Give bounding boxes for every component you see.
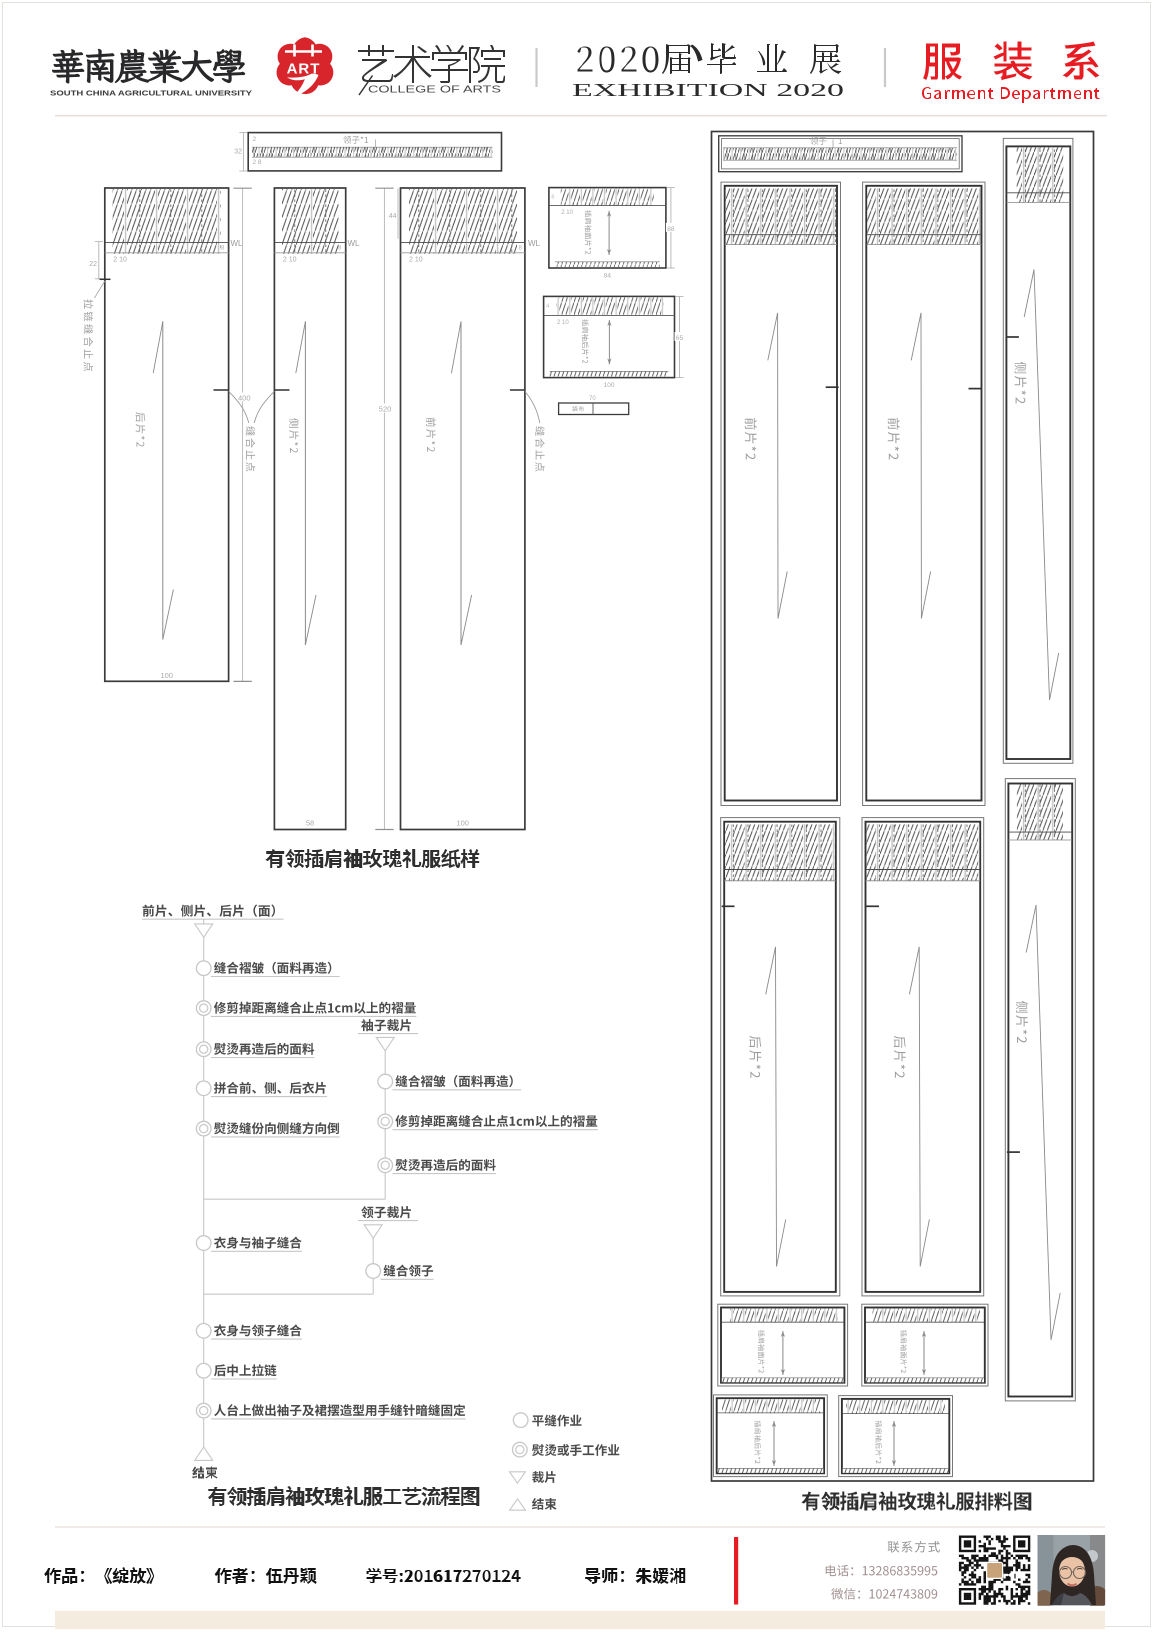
svg-text:100: 100 [160, 671, 173, 680]
svg-text:8: 8 [338, 246, 342, 252]
svg-text:COLLEGE OF ARTS: COLLEGE OF ARTS [368, 84, 501, 96]
svg-text:400: 400 [238, 394, 251, 403]
svg-text:84: 84 [604, 273, 612, 280]
svg-text:2 10: 2 10 [113, 257, 127, 264]
svg-text:2 10: 2 10 [283, 257, 297, 264]
svg-text:2 10: 2 10 [409, 257, 423, 264]
svg-text:2 8: 2 8 [253, 159, 262, 166]
svg-text:520: 520 [379, 405, 392, 414]
svg-text:WL: WL [528, 239, 541, 248]
svg-text:58: 58 [306, 819, 314, 828]
svg-text:2 10: 2 10 [561, 210, 573, 216]
svg-text:1: 1 [838, 137, 843, 146]
svg-text:4: 4 [546, 303, 549, 309]
svg-text:32: 32 [234, 149, 242, 156]
svg-text:6: 6 [551, 195, 554, 201]
svg-text:WL: WL [231, 239, 244, 248]
svg-text:SOUTH CHINA AGRICULTURAL UNIVE: SOUTH CHINA AGRICULTURAL UNIVERSITY [50, 91, 253, 98]
svg-text:8: 8 [221, 246, 225, 252]
svg-text:2: 2 [253, 136, 257, 143]
svg-text:2 10: 2 10 [557, 320, 569, 326]
svg-text:100: 100 [604, 382, 615, 389]
svg-text:22: 22 [89, 261, 97, 268]
svg-text:70: 70 [589, 396, 596, 402]
svg-text:WL: WL [348, 239, 361, 248]
svg-text:100: 100 [456, 819, 469, 828]
svg-text:88: 88 [667, 226, 675, 233]
svg-text:65: 65 [676, 335, 684, 342]
svg-text:EXHIBITION 2020: EXHIBITION 2020 [572, 80, 844, 100]
svg-text:44: 44 [389, 213, 397, 220]
svg-text:8: 8 [519, 246, 523, 252]
